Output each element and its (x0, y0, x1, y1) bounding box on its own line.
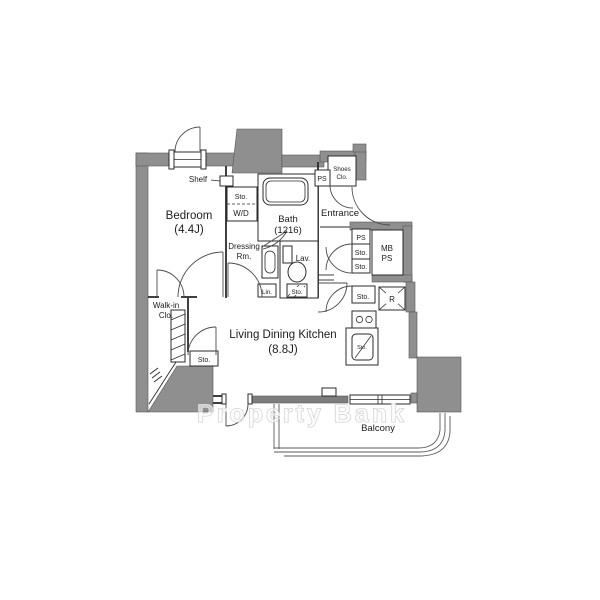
lin-label: Lin. (262, 289, 272, 296)
storage-2-label: Sto. (355, 264, 368, 271)
watermark: Property Bank (197, 400, 407, 428)
wall-top-band-right (204, 153, 237, 166)
dressing-label-1: Dressing (228, 242, 260, 251)
shelf-label: Shelf (189, 175, 208, 184)
bath-size-label: (1216) (274, 225, 301, 236)
ldk-size-label: (8.8J) (268, 344, 298, 356)
floor-plan-page: Shelf Bedroom (4.4J) Sto. W/D Bath (1216… (0, 0, 600, 600)
lav-label: Lav. (296, 254, 311, 263)
toilet-storage-label: Sto. (291, 289, 302, 296)
ps-right-label: PS (356, 235, 366, 242)
walkin-label-2: Clo. (159, 311, 173, 320)
ps-top-label: PS (317, 176, 327, 183)
refrigerator-label: R (389, 295, 395, 304)
wall-kitchen-right-upper (406, 282, 415, 312)
shoes-door-arc (330, 185, 353, 208)
ldk-label: Living Dining Kitchen (229, 329, 336, 341)
hall-storage-arc-2 (326, 247, 352, 273)
bath-label: Bath (278, 214, 298, 225)
lav-cabinet (283, 246, 292, 263)
bedroom-size-label: (4.4J) (174, 224, 204, 236)
shoes-label-2: Clo. (336, 174, 347, 181)
wd-storage-label: Sto. (235, 194, 248, 201)
window-swing-arc (175, 127, 200, 152)
wall-kitchen-right-lower (409, 312, 417, 358)
entrance-door-arc (352, 187, 390, 225)
wall-entrance-step-tab (353, 144, 366, 152)
wall-entrance-right-jog (355, 151, 366, 180)
wall-top-band-left (136, 153, 171, 166)
pillar-bottom-right (417, 357, 461, 412)
wall-left-band (136, 153, 148, 412)
dressing-door-arc (228, 263, 262, 297)
dressing-label-2: Rm. (237, 252, 252, 261)
mb-label: MB (381, 244, 393, 253)
walkin-label-1: Walk-in (153, 301, 179, 310)
entrance-label: Entrance (321, 208, 359, 219)
floor-plan-drawing: Shelf Bedroom (4.4J) Sto. W/D Bath (1216… (0, 0, 600, 600)
pillar-bottom-right-tab (411, 393, 417, 403)
storage-3-label: Sto. (357, 294, 370, 301)
wall-mbps-bottom (372, 275, 412, 282)
shoes-label-1: Shoes (333, 166, 351, 173)
window-notch (322, 388, 336, 396)
hall-storage-arc-1 (326, 244, 352, 270)
toilet-bowl (288, 262, 306, 282)
hall-storage-arc-3 (326, 286, 352, 312)
pillar-top-center (232, 129, 282, 173)
bedroom-label: Bedroom (166, 210, 213, 222)
storage-1-label: Sto. (355, 250, 368, 257)
shelf-box (220, 176, 233, 186)
sink-storage-label: Sto. (357, 345, 367, 351)
wall-mbps-right (403, 226, 412, 282)
bedroom-door-arc (178, 252, 223, 297)
mb-ps-label: PS (382, 254, 393, 263)
wd-label: W/D (233, 209, 249, 218)
walkin-storage-label: Sto. (198, 357, 211, 364)
